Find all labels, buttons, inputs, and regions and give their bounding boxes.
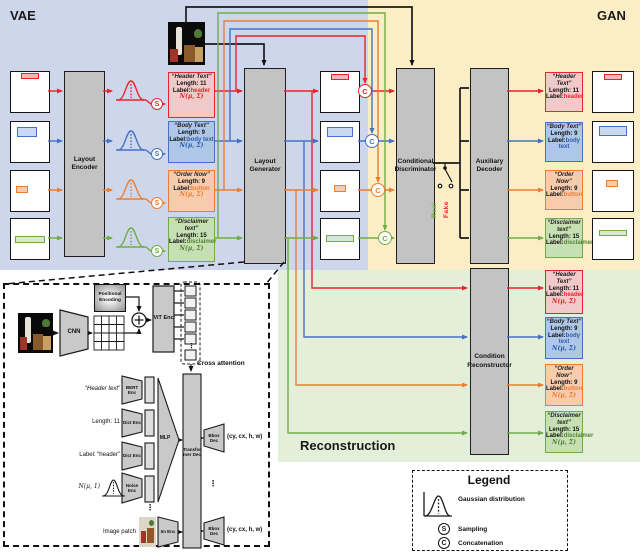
sampling-icon-body: S xyxy=(151,148,163,160)
layout-encoder-block: Layout Encoder xyxy=(64,71,105,257)
condition-box-header-vae: “Header Text”Length: 11 Label:header N(μ… xyxy=(168,72,215,118)
image-patch-thumb xyxy=(139,517,156,547)
mlp-label: MLP xyxy=(157,434,173,444)
concat-icon-body: C xyxy=(365,134,379,148)
vit-enc-label: ViT Enc xyxy=(153,306,174,330)
noise-enc-label: Noise Enc xyxy=(122,479,142,497)
detail-input-image xyxy=(18,313,53,353)
transformer-dec-label: Transformer Dec xyxy=(183,428,201,476)
ellipsis-bars: ⋮ xyxy=(146,504,154,512)
image-patch-label: Image patch xyxy=(92,529,136,535)
result-layout-button xyxy=(592,170,634,212)
input-layout-disclaimer xyxy=(10,218,50,260)
bert-enc-label: BERT Enc xyxy=(122,381,142,399)
condition-box-disclaimer-vae: “Disclaimer text”Length: 15 Label:discla… xyxy=(168,217,215,262)
input-layout-header xyxy=(10,71,50,113)
input-layout-body xyxy=(10,121,50,163)
detail-input-noise: N(μ, 1) xyxy=(62,483,100,490)
sampling-icon-header: S xyxy=(151,98,163,110)
input-layout-button xyxy=(10,170,50,212)
detail-input-length: Length: 11 xyxy=(58,419,120,425)
condition-box-body-gan: “Body Text”Length: 9 Label:body text xyxy=(545,122,583,162)
bbox-dec-label-2: Bbox Dec xyxy=(204,523,224,539)
result-layout-body xyxy=(592,121,634,163)
vae-region-label: VAE xyxy=(10,8,36,23)
dict-enc-label-2: Dict Enc xyxy=(122,447,142,465)
condition-box-disclaimer-recon: “Disclaimer text”Length: 15 Label:discla… xyxy=(545,411,583,453)
layout-element-button xyxy=(606,180,618,187)
condition-box-header-recon: “Header Text”Length: 11 Label:header N(μ… xyxy=(545,270,583,314)
layout-element-header xyxy=(331,74,349,80)
layout-element-disclaimer xyxy=(599,230,627,236)
conditional-discriminator-block: Conditional Discriminator xyxy=(396,68,435,264)
legend-sampling-icon: S xyxy=(438,523,450,535)
layout-element-header xyxy=(21,73,39,79)
positional-encoding-block: Positional Encoding xyxy=(94,284,126,312)
reconstruction-region-label: Reconstruction xyxy=(300,438,395,453)
im-enc-label: Im Enc xyxy=(158,524,178,540)
bbox-dec-label-1: Bbox Dec xyxy=(204,430,224,446)
condition-box-body-recon: “Body Text”Length: 9 Label:body text N(μ… xyxy=(545,317,583,359)
generated-layout-disclaimer xyxy=(320,218,360,260)
architecture-figure: VAE GAN Reconstruction xyxy=(0,0,640,552)
legend-title: Legend xyxy=(412,473,566,487)
result-layout-disclaimer xyxy=(592,218,634,260)
generated-layout-button xyxy=(320,170,360,212)
condition-box-disclaimer-gan: “Disclaimer text”Length: 15 Label:discla… xyxy=(545,218,583,258)
bbox-output-1: (cy, cx, h, w) xyxy=(227,434,262,440)
legend-gaussian-label: Gaussian distribution xyxy=(458,495,528,504)
generated-layout-header xyxy=(320,71,360,113)
condition-reconstructor-block: Condition Reconstructor xyxy=(470,268,509,455)
layout-element-header xyxy=(604,74,622,80)
layout-element-disclaimer xyxy=(15,236,45,243)
legend-sampling-label: Sampling xyxy=(458,526,538,533)
layout-generator-block: Layout Generator xyxy=(244,68,286,264)
ellipsis-bbox: ⋮ xyxy=(209,480,217,488)
sampling-icon-button: S xyxy=(151,197,163,209)
layout-element-button xyxy=(334,185,346,192)
fake-label: Fake xyxy=(443,190,450,218)
product-image xyxy=(168,22,205,65)
concat-icon-disclaimer: C xyxy=(378,231,392,245)
gan-region-label: GAN xyxy=(597,8,626,23)
cross-attention-label: Cross attention xyxy=(197,360,261,369)
layout-element-body xyxy=(17,127,37,137)
condition-box-button-recon: “Order Now”Length: 9 Label:button N(μ, Σ… xyxy=(545,364,583,406)
dict-enc-label-1: Dict Enc xyxy=(122,414,142,432)
real-label: Real xyxy=(431,190,438,218)
condition-box-button-vae: “Order Now”Length: 9 Label:button N(μ, Σ… xyxy=(168,170,215,212)
detail-input-text: “Header text” xyxy=(58,386,120,392)
auxiliary-decoder-block: Auxiliary Decoder xyxy=(470,68,509,264)
condition-box-body-vae: “Body Text”Length: 9 Label:body text N(μ… xyxy=(168,121,215,163)
detail-input-label: Label: “header” xyxy=(50,452,120,458)
condition-box-button-gan: “Order Now”Length: 9 Label:button xyxy=(545,170,583,210)
concat-icon-button: C xyxy=(371,183,385,197)
sampling-icon-disclaimer: S xyxy=(151,245,163,257)
cnn-label: CNN xyxy=(61,326,87,338)
concat-icon-header: C xyxy=(358,84,372,98)
bbox-output-2: (cy, cx, h, w) xyxy=(227,527,262,533)
condition-box-header-gan: “Header Text”Length: 11 Label:header xyxy=(545,72,583,112)
legend-concat-label: Concatenation xyxy=(458,540,538,547)
layout-element-disclaimer xyxy=(326,235,354,242)
layout-element-button xyxy=(16,186,28,193)
result-layout-header xyxy=(592,71,634,113)
layout-element-body xyxy=(599,126,627,136)
layout-element-body xyxy=(327,127,353,137)
legend-concat-icon: C xyxy=(438,537,450,549)
generated-layout-body xyxy=(320,121,360,163)
